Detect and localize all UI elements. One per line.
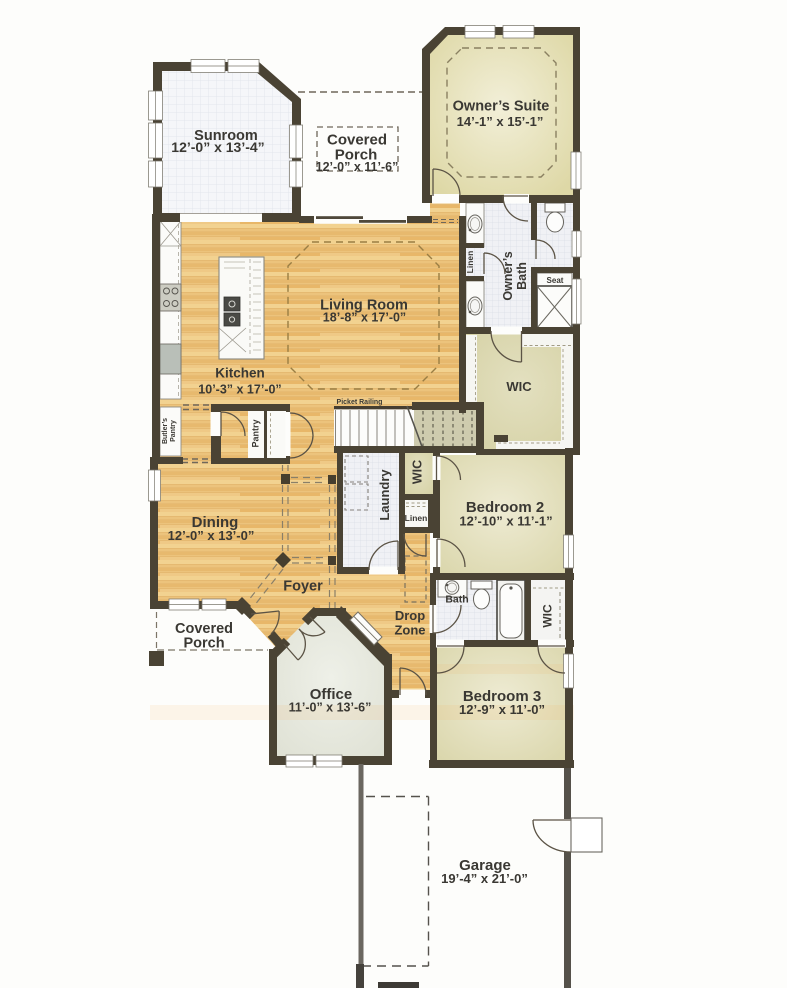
svg-text:Pantry: Pantry [251, 419, 261, 447]
svg-text:Bath: Bath [445, 594, 468, 606]
svg-text:Kitchen: Kitchen [215, 366, 265, 381]
svg-text:12’-0” x 13’-0”: 12’-0” x 13’-0” [168, 528, 255, 543]
svg-text:10’-3” x 17’-0”: 10’-3” x 17’-0” [198, 383, 281, 397]
svg-text:Bath: Bath [515, 262, 529, 290]
svg-text:Owner’s Suite: Owner’s Suite [453, 99, 550, 115]
svg-text:11’-0” x 13’-6”: 11’-0” x 13’-6” [289, 701, 372, 715]
svg-text:Owner’s: Owner’s [501, 251, 515, 300]
svg-text:Zone: Zone [394, 623, 425, 638]
svg-text:Laundry: Laundry [377, 469, 392, 521]
svg-text:Porch: Porch [183, 636, 224, 652]
svg-text:WIC: WIC [506, 379, 532, 394]
svg-text:12’-10” x 11’-1”: 12’-10” x 11’-1” [459, 514, 552, 529]
svg-text:19’-4” x 21’-0”: 19’-4” x 21’-0” [441, 871, 528, 886]
svg-text:Linen: Linen [465, 251, 475, 274]
svg-text:WIC: WIC [411, 460, 425, 484]
svg-text:12’-0” x 13’-4”: 12’-0” x 13’-4” [171, 139, 264, 155]
svg-text:Pantry: Pantry [170, 420, 177, 442]
svg-text:Drop: Drop [395, 608, 425, 623]
svg-text:Butler’s: Butler’s [162, 418, 169, 444]
svg-text:WIC: WIC [541, 604, 555, 628]
svg-text:12’-0” x 11’-6”: 12’-0” x 11’-6” [316, 160, 399, 174]
svg-text:12’-9” x 11’-0”: 12’-9” x 11’-0” [459, 702, 545, 717]
svg-text:14’-1” x 15’-1”: 14’-1” x 15’-1” [457, 114, 544, 129]
svg-text:Linen: Linen [405, 513, 428, 523]
svg-text:Foyer: Foyer [283, 579, 323, 595]
svg-text:Seat: Seat [547, 276, 564, 285]
svg-text:Picket Railing: Picket Railing [337, 399, 383, 406]
svg-text:18’-8” x 17’-0”: 18’-8” x 17’-0” [323, 311, 406, 325]
